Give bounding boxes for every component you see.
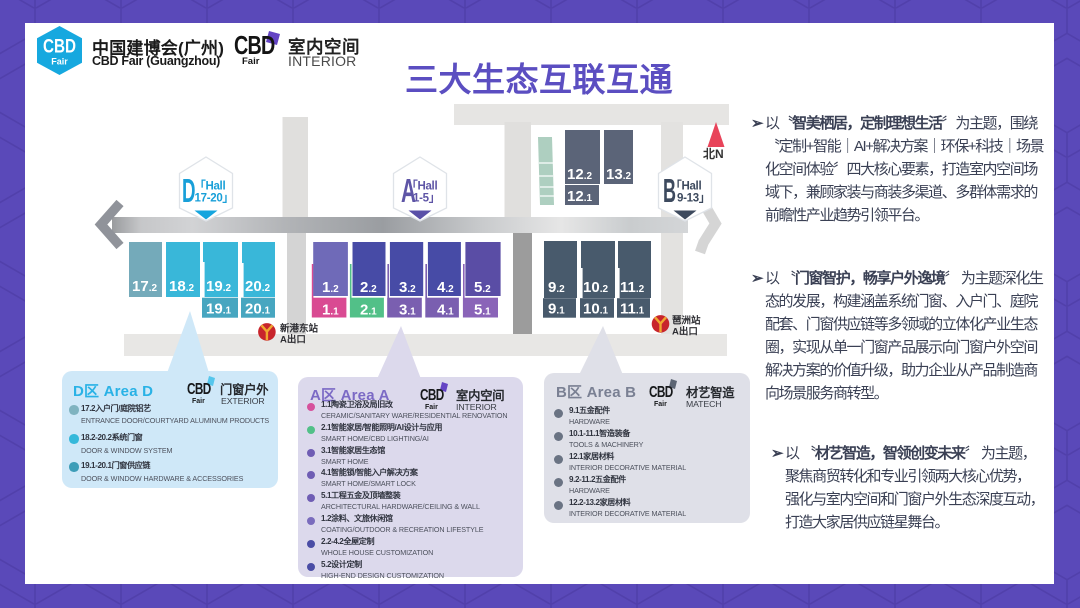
svg-text:｢Hall: ｢Hall <box>200 179 225 193</box>
svg-text:D: D <box>182 172 196 209</box>
svg-text:｢Hall: ｢Hall <box>676 179 701 193</box>
svg-text:A出口: A出口 <box>672 326 698 338</box>
svg-text:17-20｣: 17-20｣ <box>195 193 228 205</box>
svg-text:北N: 北N <box>703 146 724 161</box>
svg-text:B: B <box>663 172 676 209</box>
svg-text:琶洲站: 琶洲站 <box>672 315 701 327</box>
svg-text:1-5｣: 1-5｣ <box>413 193 434 205</box>
svg-text:｢Hall: ｢Hall <box>412 179 437 193</box>
svg-text:A出口: A出口 <box>280 334 306 346</box>
svg-text:9-13｣: 9-13｣ <box>677 193 704 205</box>
svg-text:新港东站: 新港东站 <box>280 323 319 335</box>
